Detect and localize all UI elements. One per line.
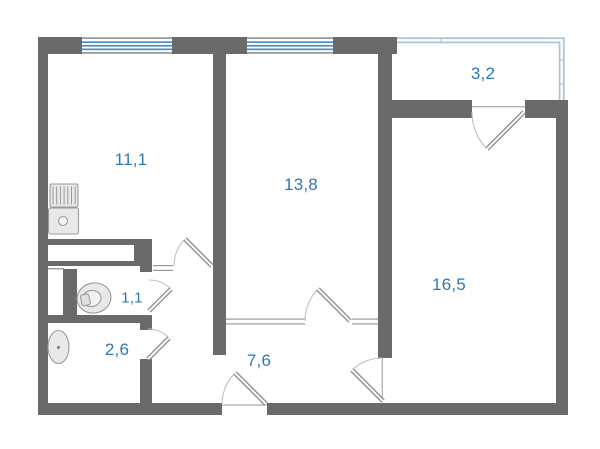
room-label-bedroom: 16,5 xyxy=(432,275,466,295)
door-leaf-balcony-inner xyxy=(487,112,524,149)
duct-shaft-core xyxy=(48,245,134,261)
door-leaf-bathroom xyxy=(148,338,169,359)
window-kitchen-frame-inner xyxy=(82,52,172,54)
door-leaf-wc xyxy=(149,289,171,311)
door-leaf-wc-inner xyxy=(149,289,171,311)
wall-top-segment-2 xyxy=(172,37,247,54)
arc-bathroom-door xyxy=(148,329,169,338)
floor-plan: 11,1 13,8 3,2 16,5 1,1 2,6 7,6 xyxy=(0,0,600,449)
niche-top-line xyxy=(48,268,64,269)
door-leaf-living-inner xyxy=(318,289,350,321)
wall-kitchen-living-divider xyxy=(213,54,226,355)
partition-kitchen-line-top xyxy=(153,265,173,266)
partition-kitchen-hall xyxy=(153,265,173,271)
room-label-balcony: 3,2 xyxy=(471,64,495,84)
arc-wc-door xyxy=(149,280,171,289)
window-kitchen-glass-2 xyxy=(82,45,172,47)
washbasin xyxy=(48,331,69,364)
arc-living-door xyxy=(305,289,318,321)
partition-hall-left-line-bottom xyxy=(226,323,305,324)
room-label-kitchen: 11,1 xyxy=(115,150,148,170)
door-leaves xyxy=(148,112,524,404)
wall-bottom-right xyxy=(267,403,568,415)
washbasin-drain xyxy=(57,346,60,349)
partition-hall-right-line-top xyxy=(352,319,378,320)
door-leaf-entrance xyxy=(235,373,266,404)
window-living-frame-outer xyxy=(247,37,333,39)
window-kitchen-glass-3 xyxy=(82,49,172,51)
door-leaf-living xyxy=(318,289,350,321)
threshold-entrance-door xyxy=(222,404,267,405)
door-leaf-kitchen-inner xyxy=(185,239,212,266)
wall-bathroom-right-lower xyxy=(140,359,152,403)
door-leaf-bedroom-inner xyxy=(352,370,383,401)
partition-kitchen-line-bottom xyxy=(153,270,173,271)
room-label-hallway: 7,6 xyxy=(247,351,271,371)
wall-balcony-parapet-right xyxy=(525,100,568,118)
door-leaf-balcony xyxy=(487,112,524,149)
window-kitchen-frame-outer xyxy=(82,37,172,39)
kitchen-drainer-hatch xyxy=(53,187,75,205)
kitchen-sink-drain xyxy=(59,217,68,226)
wall-bottom-left xyxy=(38,403,222,415)
arc-kitchen-door xyxy=(174,239,185,266)
partition-hall-left-line-top xyxy=(226,319,305,320)
kitchen-sink-unit xyxy=(49,184,79,234)
wall-wc-bathroom-divider xyxy=(48,315,152,323)
door-leaf-kitchen xyxy=(185,239,212,266)
wall-left xyxy=(38,37,48,415)
room-label-bathroom: 2,6 xyxy=(105,340,129,360)
room-label-wc: 1,1 xyxy=(121,290,142,307)
partition-hall-living-left xyxy=(226,319,305,325)
wall-right xyxy=(556,100,568,415)
threshold-balcony-door xyxy=(472,106,525,107)
wall-balcony-parapet-left xyxy=(392,100,472,118)
frame-bedroom-door xyxy=(382,358,383,402)
door-swing-arcs xyxy=(148,112,487,404)
window-living-glass-1 xyxy=(247,41,333,43)
arc-bedroom-door xyxy=(352,358,383,370)
window-living-glass-3 xyxy=(247,49,333,51)
door-leaf-entrance-inner xyxy=(235,373,266,404)
interior-walls xyxy=(48,54,392,403)
window-living-room xyxy=(247,37,333,54)
room-label-living-room: 13,8 xyxy=(284,175,318,195)
window-living-frame-inner xyxy=(247,52,333,54)
toilet-tank xyxy=(80,294,91,307)
wall-top-segment-1 xyxy=(38,37,82,54)
toilet xyxy=(74,280,113,316)
door-leaf-bedroom xyxy=(352,370,383,401)
floor-plan-drawing xyxy=(0,0,600,449)
arc-balcony-door xyxy=(472,112,487,149)
wall-living-bedroom-divider xyxy=(378,54,392,358)
window-kitchen-glass-1 xyxy=(82,41,172,43)
arc-entrance-door xyxy=(222,373,235,404)
window-living-glass-2 xyxy=(247,45,333,47)
window-kitchen xyxy=(82,37,172,54)
partition-hall-living-right xyxy=(352,319,378,325)
wall-wc-right-upper xyxy=(140,261,152,272)
wall-top-segment-3 xyxy=(333,37,397,54)
partition-hall-right-line-bottom xyxy=(352,323,378,324)
wall-niche-partition xyxy=(63,269,77,315)
door-leaf-bathroom-inner xyxy=(148,338,169,359)
